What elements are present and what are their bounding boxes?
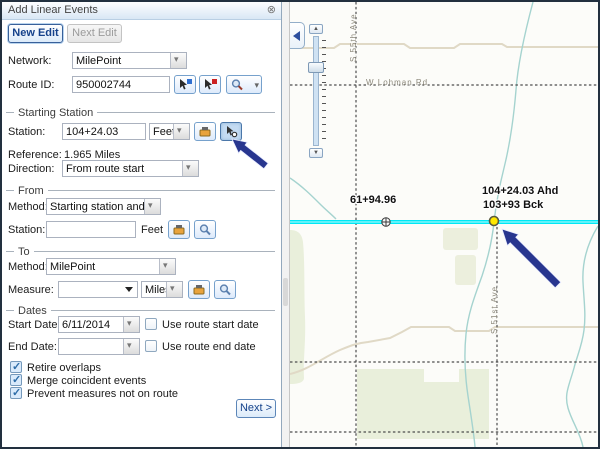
merge-coincident-events-checkbox[interactable] — [10, 374, 22, 386]
station-label: Station: — [8, 126, 45, 138]
scrollbar-thumb[interactable] — [283, 278, 288, 306]
end-date-label: End Date: — [8, 341, 57, 353]
section-from: From — [6, 184, 275, 197]
station-input[interactable]: 104+24.03 — [62, 123, 146, 140]
from-station-label: Station: — [8, 224, 45, 236]
from-search-button[interactable] — [194, 220, 216, 239]
pick-station-on-map-button[interactable] — [220, 122, 242, 141]
close-icon[interactable]: ⊗ — [267, 3, 276, 16]
direction-dropdown[interactable]: From route start — [62, 160, 199, 177]
zoom-slider-ticks — [322, 40, 326, 143]
selected-point-marker[interactable] — [490, 217, 499, 226]
from-station-tool-button[interactable] — [168, 220, 190, 239]
chevron-left-icon — [293, 31, 300, 41]
measure-combo[interactable] — [58, 281, 138, 298]
network-label: Network: — [8, 55, 51, 67]
chevron-down-icon[interactable] — [182, 161, 198, 176]
direction-label: Direction: — [8, 163, 54, 175]
use-route-end-date-label: Use route end date — [162, 341, 256, 353]
prevent-measures-checkbox[interactable] — [10, 387, 22, 399]
chevron-down-icon: ▾ — [254, 80, 259, 91]
ahead-measure-label: 104+24.03 Ahd — [482, 185, 558, 197]
road-beige-bottom — [290, 327, 598, 374]
measure-label: Measure: — [8, 284, 54, 296]
route-search-dropdown-button[interactable]: ▾ — [226, 75, 262, 94]
back-measure-label: 103+93 Bck — [483, 199, 543, 211]
to-method-label: Method: — [8, 261, 48, 273]
station-reference-marker — [382, 218, 390, 226]
chevron-down-icon[interactable] — [144, 199, 160, 214]
panel-title: Add Linear Events — [8, 4, 98, 16]
retire-overlaps-checkbox[interactable] — [10, 361, 22, 373]
station-tool-button[interactable] — [194, 122, 216, 141]
map-canvas[interactable]: S 55th Ave W Lohman Rd S 51st Ave 61+94.… — [290, 2, 598, 447]
chevron-down-icon[interactable] — [125, 287, 133, 292]
prevent-measures-label: Prevent measures not on route — [27, 388, 178, 400]
chevron-down-icon[interactable] — [123, 317, 139, 332]
measure-unit-dropdown[interactable]: Miles — [141, 281, 183, 298]
zoom-out-button[interactable]: ▼ — [309, 148, 323, 158]
use-route-start-date-checkbox[interactable] — [145, 318, 157, 330]
new-edit-button[interactable]: New Edit — [8, 24, 63, 43]
chevron-down-icon[interactable] — [170, 53, 186, 68]
clear-route-selection-button[interactable] — [199, 75, 221, 94]
app-window: Add Linear Events ⊗ New Edit Next Edit N… — [0, 0, 600, 449]
park-area-blob2 — [455, 255, 476, 285]
measure-search-button[interactable] — [214, 280, 236, 299]
use-route-end-date-checkbox[interactable] — [145, 340, 157, 352]
annotation-arrow-map — [502, 229, 561, 288]
chevron-down-icon[interactable] — [173, 124, 189, 139]
to-method-dropdown[interactable]: MilePoint — [46, 258, 176, 275]
network-dropdown[interactable]: MilePoint — [72, 52, 187, 69]
route-id-label: Route ID: — [8, 79, 54, 91]
from-unit-label: Feet — [141, 224, 163, 236]
park-area-left — [290, 230, 305, 384]
zoom-slider-thumb[interactable] — [308, 62, 324, 73]
start-date-label: Start Date: — [8, 319, 61, 331]
panel-scrollbar[interactable] — [282, 2, 290, 447]
road-label-w-lohman-rd: W Lohman Rd — [366, 78, 428, 87]
station-unit-dropdown[interactable]: Feet — [149, 123, 190, 140]
section-starting-station: Starting Station — [6, 106, 275, 119]
road-beige-top — [290, 44, 598, 48]
route-id-input[interactable]: 950002744 — [72, 76, 170, 93]
road-label-s-55th-ave: S 55th Ave — [349, 13, 358, 62]
zoom-in-button[interactable]: ▲ — [309, 24, 323, 34]
river-east — [567, 226, 598, 447]
next-button[interactable]: Next > — [236, 399, 276, 418]
from-station-input[interactable] — [46, 221, 136, 238]
collapse-panel-button[interactable] — [290, 22, 305, 49]
panel-titlebar: Add Linear Events ⊗ — [2, 2, 281, 20]
measure-tool-button[interactable] — [188, 280, 210, 299]
start-date-field[interactable]: 6/11/2014 — [58, 316, 140, 333]
from-method-label: Method: — [8, 201, 48, 213]
station-point-label: 61+94.96 — [350, 194, 396, 206]
road-label-s-51st-ave: S 51st Ave — [490, 286, 499, 334]
zoom-slider-track[interactable] — [313, 36, 319, 146]
section-to: To — [6, 245, 275, 258]
select-route-on-map-button[interactable] — [174, 75, 196, 94]
river-west — [290, 178, 336, 219]
chevron-down-icon[interactable] — [123, 339, 139, 354]
zoom-slider: ▲ ▼ — [307, 24, 325, 162]
park-area-blob1 — [443, 228, 478, 250]
next-edit-button[interactable]: Next Edit — [67, 24, 122, 43]
from-method-dropdown[interactable]: Starting station and offset — [46, 198, 161, 215]
add-linear-events-panel: Add Linear Events ⊗ New Edit Next Edit N… — [2, 2, 282, 447]
end-date-field[interactable] — [58, 338, 140, 355]
chevron-down-icon[interactable] — [166, 282, 182, 297]
chevron-down-icon[interactable] — [159, 259, 175, 274]
use-route-start-date-label: Use route start date — [162, 319, 259, 331]
